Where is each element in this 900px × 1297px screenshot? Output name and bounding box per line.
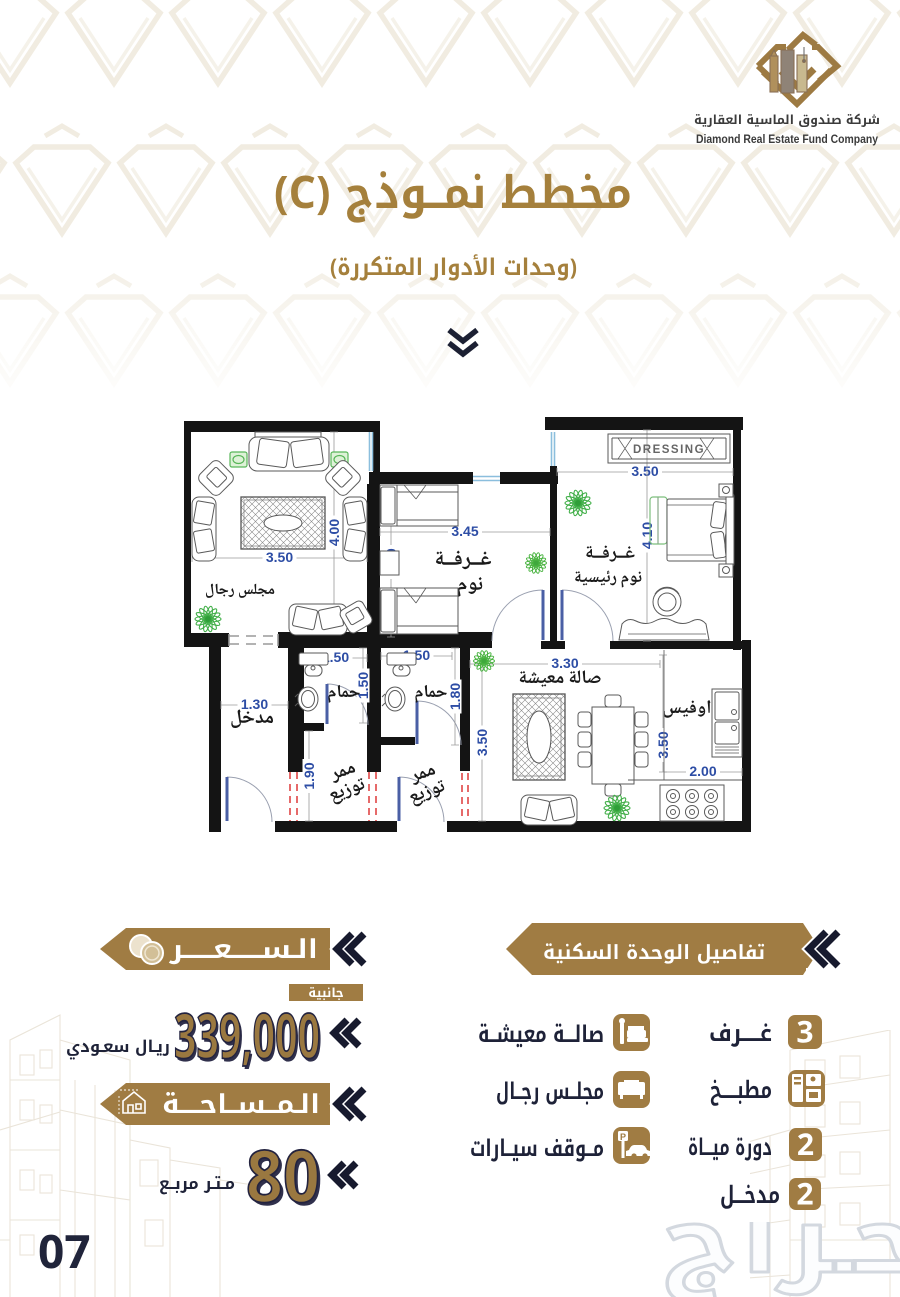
- svg-text:Diamond Real Estate Fund Compa: Diamond Real Estate Fund Company: [696, 134, 879, 146]
- svg-text:3.50: 3.50: [474, 729, 490, 756]
- svg-text:4.10: 4.10: [639, 522, 655, 549]
- svg-text:1.90: 1.90: [301, 762, 317, 789]
- svg-text:4.00: 4.00: [326, 519, 342, 546]
- svg-text:P: P: [620, 1132, 626, 1142]
- svg-text:1.50: 1.50: [355, 672, 371, 699]
- svg-text:DRESSING: DRESSING: [633, 444, 705, 456]
- svg-text:3.50: 3.50: [266, 549, 293, 565]
- svg-text:1.80: 1.80: [447, 683, 463, 710]
- svg-text:3.50: 3.50: [631, 463, 658, 479]
- svg-text:3.30: 3.30: [551, 655, 578, 671]
- svg-text:2.00: 2.00: [689, 763, 716, 779]
- svg-text:3.50: 3.50: [655, 731, 671, 758]
- svg-text:1.30: 1.30: [241, 696, 268, 712]
